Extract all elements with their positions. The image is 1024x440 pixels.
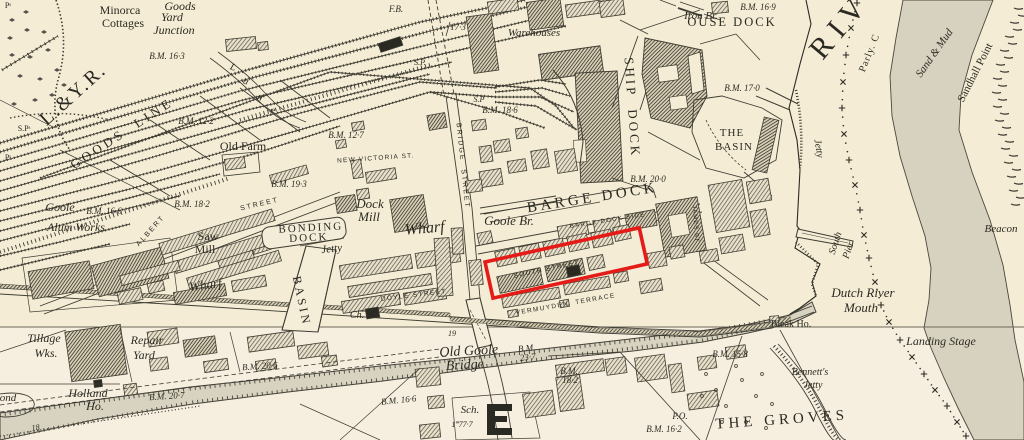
svg-text:Pˢ: Pˢ bbox=[5, 1, 11, 10]
svg-text:Ho.: Ho. bbox=[85, 399, 104, 413]
svg-text:Jetty: Jetty bbox=[321, 242, 343, 256]
svg-text:Mill: Mill bbox=[195, 242, 216, 256]
svg-text:Repair: Repair bbox=[130, 333, 164, 347]
svg-text:Dutch River: Dutch River bbox=[830, 285, 895, 300]
svg-text:B.M. 16·9: B.M. 16·9 bbox=[740, 2, 776, 12]
svg-text:B.M. 19·3: B.M. 19·3 bbox=[271, 179, 307, 189]
svg-text:THE: THE bbox=[720, 127, 744, 139]
svg-text:Goole: Goole bbox=[45, 200, 75, 214]
svg-text:Cottages: Cottages bbox=[102, 16, 144, 30]
svg-text:F.B.: F.B. bbox=[388, 4, 403, 14]
svg-text:Saw: Saw bbox=[198, 229, 219, 243]
svg-text:Holland: Holland bbox=[67, 386, 108, 400]
svg-text:B.M. 16·2: B.M. 16·2 bbox=[646, 424, 682, 434]
svg-text:Minorca: Minorca bbox=[100, 3, 141, 17]
svg-text:1‴77·7: 1‴77·7 bbox=[451, 420, 473, 429]
svg-text:Junction: Junction bbox=[153, 23, 194, 37]
svg-text:Sch.: Sch. bbox=[461, 404, 480, 416]
svg-text:Wks.: Wks. bbox=[35, 346, 58, 360]
svg-text:B.M. 15·8: B.M. 15·8 bbox=[712, 349, 748, 359]
svg-text:B.M. 18·2: B.M. 18·2 bbox=[174, 199, 210, 209]
svg-text:Mouth: Mouth bbox=[843, 300, 878, 315]
svg-text:Landing Stage: Landing Stage bbox=[905, 334, 976, 348]
svg-text:B.M. 12·7: B.M. 12·7 bbox=[328, 130, 364, 140]
svg-text:B.M. 16·6: B.M. 16·6 bbox=[86, 206, 122, 216]
svg-text:Pˢ: Pˢ bbox=[5, 153, 11, 162]
svg-text:Ch.: Ch. bbox=[350, 310, 364, 321]
svg-text:Mill: Mill bbox=[357, 209, 380, 224]
svg-text:P.O.: P.O. bbox=[671, 411, 687, 421]
svg-text:Beacon: Beacon bbox=[985, 223, 1018, 235]
svg-text:BASIN: BASIN bbox=[715, 141, 753, 153]
svg-text:B.M. 18·6: B.M. 18·6 bbox=[482, 105, 518, 115]
svg-text:B.M. 16·3: B.M. 16·3 bbox=[149, 51, 185, 61]
svg-text:S.P: S.P bbox=[474, 95, 485, 104]
svg-text:B.M. 12·2: B.M. 12·2 bbox=[178, 116, 214, 126]
svg-text:19: 19 bbox=[448, 329, 456, 338]
svg-text:23·7: 23·7 bbox=[519, 351, 536, 363]
svg-text:S.Pˢ: S.Pˢ bbox=[18, 124, 31, 133]
svg-text:Bennett's: Bennett's bbox=[792, 367, 829, 378]
svg-text:B.M. 17·0: B.M. 17·0 bbox=[724, 83, 760, 93]
svg-text:Alum Works: Alum Works bbox=[46, 220, 105, 234]
svg-text:S.P.: S.P. bbox=[414, 58, 426, 67]
svg-text:Warehouses: Warehouses bbox=[508, 27, 560, 39]
svg-text:Goole Br.: Goole Br. bbox=[484, 213, 534, 228]
svg-text:Jetty: Jetty bbox=[804, 380, 823, 391]
svg-text:17·3: 17·3 bbox=[450, 22, 466, 32]
svg-text:Tillage: Tillage bbox=[27, 331, 61, 345]
svg-text:18: 18 bbox=[31, 423, 40, 433]
svg-text:OUSE DOCK: OUSE DOCK bbox=[687, 15, 776, 29]
svg-text:Yard: Yard bbox=[161, 10, 184, 24]
svg-text:Yard: Yard bbox=[133, 348, 156, 362]
svg-text:DOCK: DOCK bbox=[289, 231, 329, 245]
svg-text:ond: ond bbox=[0, 392, 17, 404]
svg-text:Bleak Ho.: Bleak Ho. bbox=[771, 319, 812, 330]
svg-text:Bridge: Bridge bbox=[445, 357, 484, 374]
svg-text:Old Farm: Old Farm bbox=[220, 139, 267, 153]
svg-text:18·2: 18·2 bbox=[562, 375, 578, 385]
svg-text:B.M. 20·0: B.M. 20·0 bbox=[630, 174, 666, 184]
